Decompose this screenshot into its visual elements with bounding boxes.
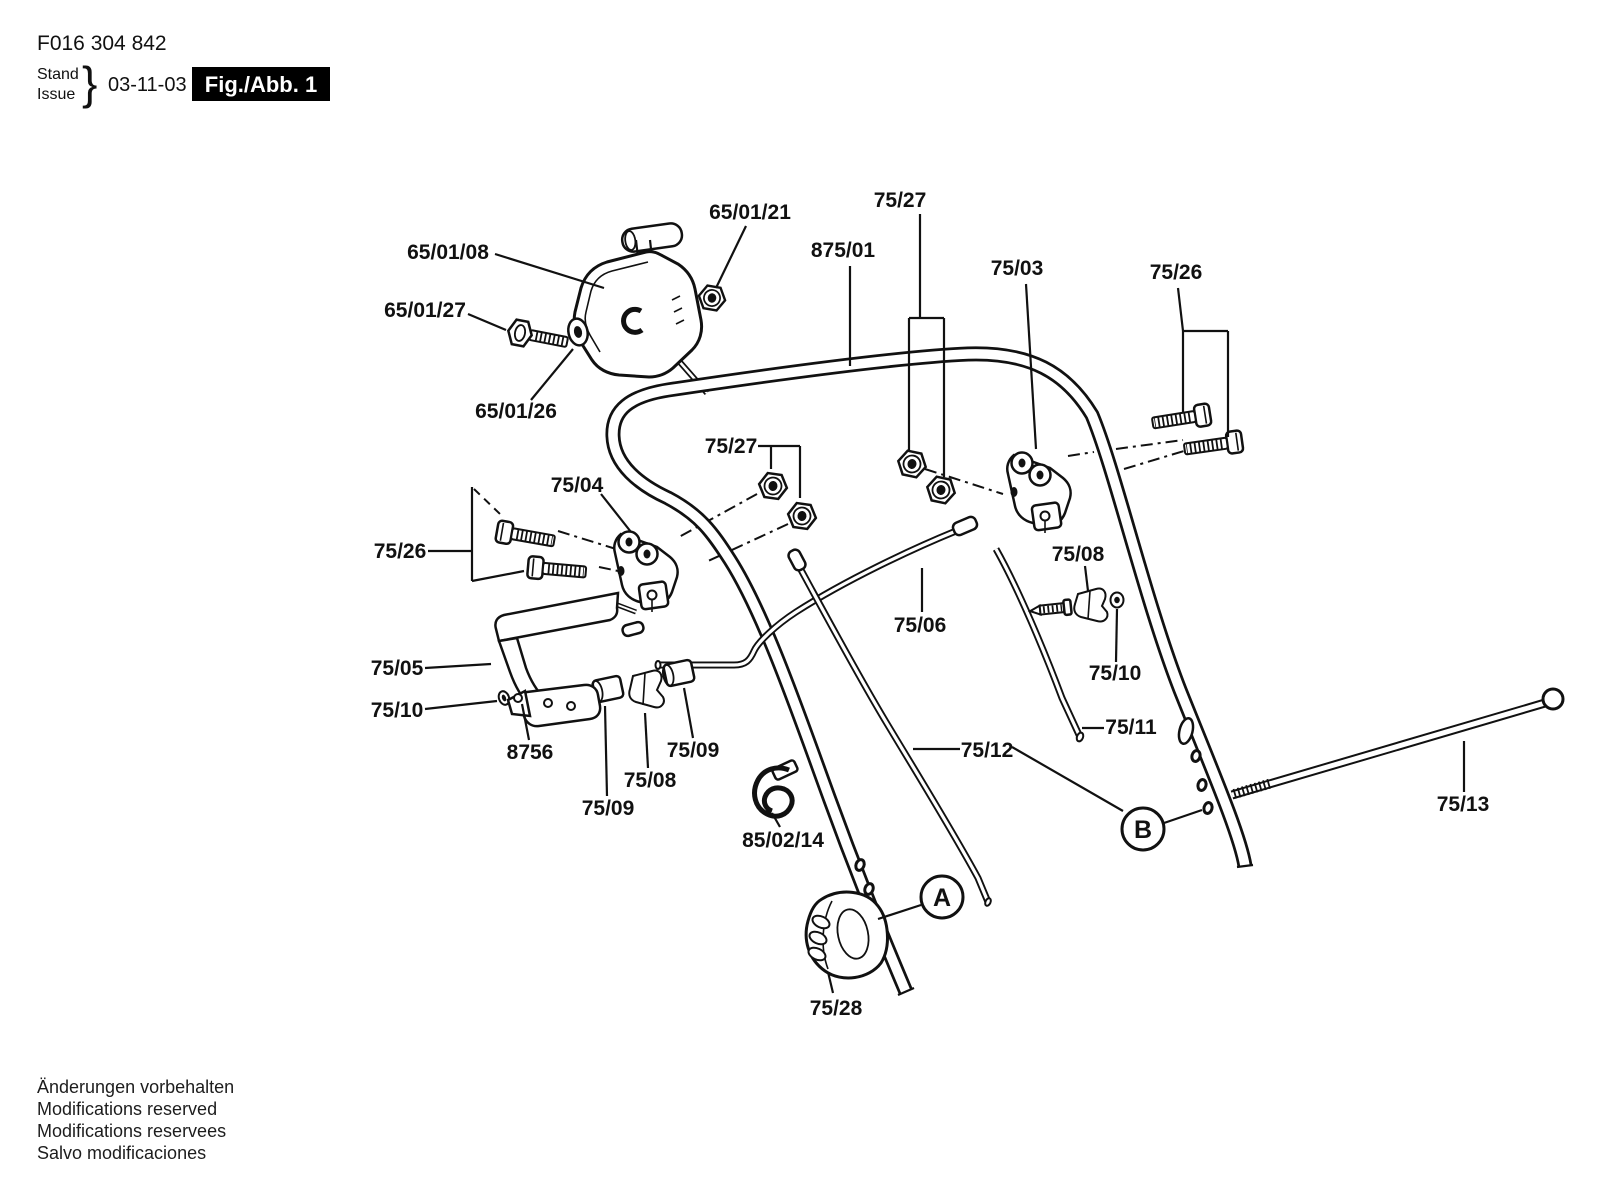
callout-75-09-right: 75/09 (667, 739, 720, 762)
callout-75-09-left: 75/09 (582, 797, 635, 820)
callout-75-08-left: 75/08 (624, 769, 677, 792)
switch-lever-assembly (574, 222, 701, 377)
clip-assembly-right (1029, 589, 1123, 622)
header: F016 304 842 Stand Issue } 03-11-03 Fig.… (37, 32, 330, 109)
lever-assembly (495, 593, 636, 726)
cable-end-cap (951, 515, 978, 536)
cable-ferrule (621, 621, 644, 637)
callout-75-05: 75/05 (371, 657, 424, 680)
figure-label: Fig./Abb. 1 (205, 72, 317, 97)
detail-a-letter: A (933, 884, 951, 912)
callout-75-26-left: 75/26 (374, 540, 427, 563)
callout-75-12: 75/12 (961, 739, 1014, 762)
rod-75-13 (1232, 689, 1563, 795)
bushing-75-09 (661, 659, 695, 687)
bolt-75-26 (495, 520, 556, 552)
nut-75-27 (786, 502, 817, 530)
lever-arm (495, 593, 618, 641)
callout-75-06: 75/06 (894, 614, 947, 637)
callout-8756: 8756 (507, 741, 554, 764)
right-tube-hole-b (1203, 802, 1213, 815)
stand-issue-brace: } (82, 57, 97, 109)
nut-75-27 (757, 472, 788, 500)
switch-housing-body (574, 252, 701, 377)
callout-65-01-27: 65/01/27 (384, 299, 466, 322)
clamp-75-03 (1007, 453, 1070, 534)
nut-75-27 (896, 449, 928, 478)
callout-75-03: 75/03 (991, 257, 1044, 280)
callout-75-27-mid: 75/27 (705, 435, 758, 458)
clamp-75-04 (614, 532, 677, 613)
callout-75-11: 75/11 (1105, 716, 1157, 739)
callout-75-27-top: 75/27 (874, 189, 927, 212)
right-tube-hole (1191, 750, 1201, 763)
grommet-75-10 (1111, 593, 1124, 608)
cable-clip-85-02-14 (755, 759, 799, 816)
right-tube-hole (1197, 779, 1207, 792)
callout-75-10-right: 75/10 (1089, 662, 1142, 685)
callout-65-01-08: 65/01/08 (407, 241, 489, 264)
callout-75-26-right: 75/26 (1150, 261, 1203, 284)
bolt-75-26 (1151, 403, 1212, 434)
callout-75-04: 75/04 (551, 474, 604, 497)
cable-clip-75-08 (1074, 589, 1107, 622)
callout-75-28: 75/28 (810, 997, 863, 1020)
cable-clip-75-08 (629, 671, 664, 708)
clip-screw (1029, 599, 1071, 618)
cable-75-06 (621, 515, 978, 669)
detail-circle-b: B (1122, 808, 1164, 850)
document-part-number: F016 304 842 (37, 32, 167, 55)
issue-label: Issue (37, 86, 75, 103)
cable-75-12 (787, 548, 992, 907)
bolt-75-26 (1183, 430, 1243, 460)
issue-date: 03-11-03 (108, 74, 187, 96)
detail-b-letter: B (1134, 816, 1152, 844)
stand-label: Stand (37, 66, 79, 83)
exploded-view-figure: F016 304 842 Stand Issue } 03-11-03 Fig.… (0, 0, 1600, 1203)
nut-65-01-21 (697, 284, 727, 311)
nut-75-27 (925, 475, 957, 504)
knob-75-28 (806, 892, 887, 978)
cable-75-11 (996, 549, 1084, 742)
footer-line-de: Änderungen vorbehalten (37, 1077, 234, 1097)
callout-75-10-left: 75/10 (371, 699, 424, 722)
detail-circle-a: A (921, 876, 963, 918)
bolt-65-01-27 (506, 318, 570, 354)
callout-65-01-21: 65/01/21 (709, 201, 791, 224)
rod-hook-end (1543, 689, 1563, 709)
footer-line-fr: Modifications reservees (37, 1121, 226, 1141)
cable-end-cap (787, 548, 807, 572)
callout-85-02-14: 85/02/14 (742, 829, 824, 852)
lever-bracket-8756 (521, 685, 600, 726)
callout-75-13: 75/13 (1437, 793, 1490, 816)
footer-modification-notes: Änderungen vorbehalten Modifications res… (37, 1077, 234, 1163)
callout-75-08-right: 75/08 (1052, 543, 1105, 566)
switch-knob (621, 222, 684, 253)
footer-line-en: Modifications reserved (37, 1099, 217, 1119)
bolt-75-26 (527, 556, 587, 583)
callout-65-01-26: 65/01/26 (475, 400, 557, 423)
callout-875-01: 875/01 (811, 239, 876, 262)
parts-diagram-page: F016 304 842 Stand Issue } 03-11-03 Fig.… (0, 0, 1600, 1203)
footer-line-es: Salvo modificaciones (37, 1143, 206, 1163)
